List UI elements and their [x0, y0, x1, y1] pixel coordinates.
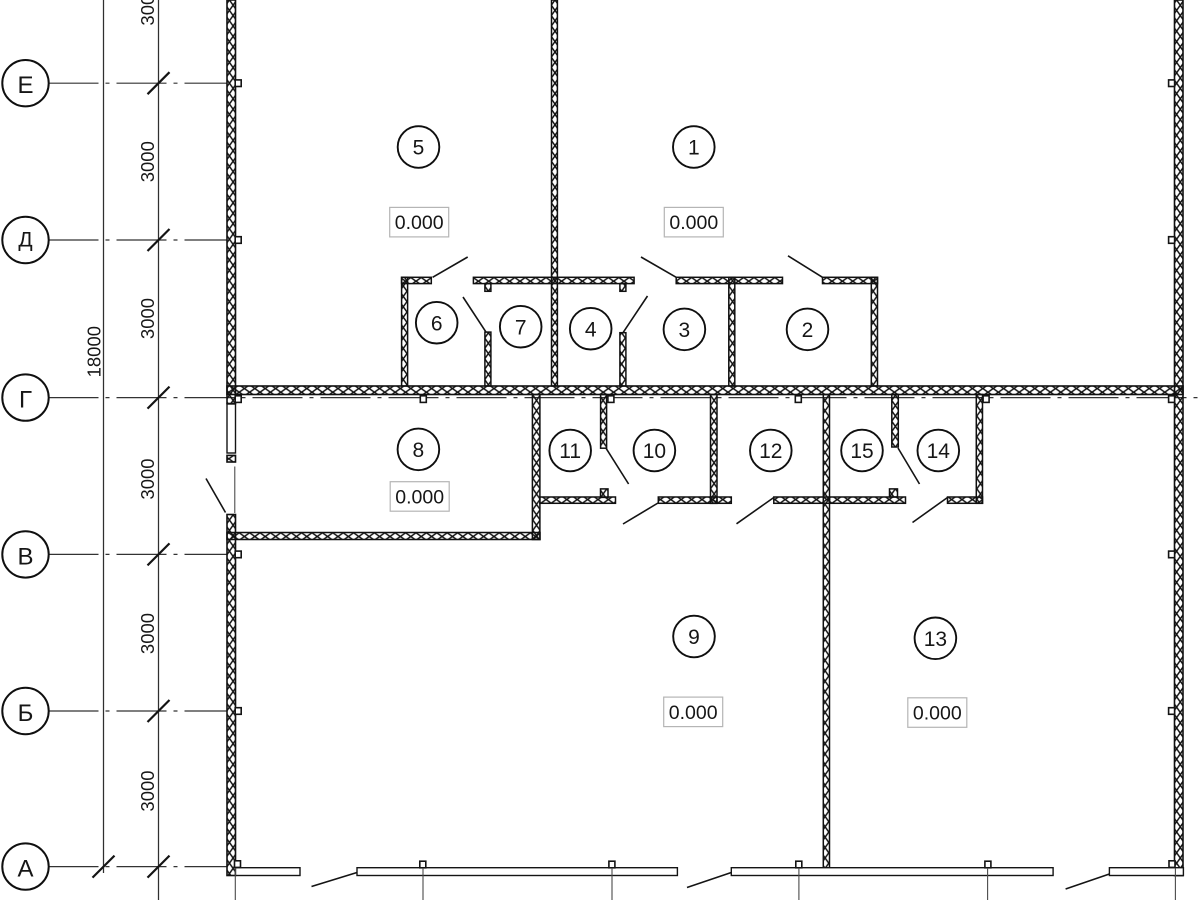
- svg-text:12: 12: [759, 440, 782, 463]
- svg-text:3: 3: [679, 319, 691, 342]
- svg-text:3000: 3000: [137, 298, 158, 339]
- svg-text:0.000: 0.000: [669, 702, 718, 724]
- svg-text:8: 8: [413, 439, 425, 462]
- svg-text:18000: 18000: [83, 326, 104, 377]
- svg-text:14: 14: [927, 440, 951, 463]
- svg-text:6: 6: [431, 312, 443, 335]
- svg-text:Е: Е: [17, 72, 33, 99]
- svg-text:3000: 3000: [137, 0, 158, 26]
- svg-text:0.000: 0.000: [395, 212, 444, 234]
- svg-text:Б: Б: [18, 700, 34, 727]
- svg-text:15: 15: [850, 440, 873, 463]
- svg-text:3000: 3000: [137, 141, 158, 182]
- svg-text:3000: 3000: [137, 458, 158, 499]
- svg-text:9: 9: [688, 626, 700, 649]
- svg-text:0.000: 0.000: [913, 703, 962, 725]
- svg-text:0.000: 0.000: [669, 212, 718, 234]
- svg-text:А: А: [17, 856, 33, 883]
- svg-text:0.000: 0.000: [395, 486, 444, 508]
- svg-text:1: 1: [688, 137, 700, 160]
- svg-text:3000: 3000: [137, 770, 158, 811]
- svg-text:2: 2: [802, 319, 814, 342]
- svg-text:5: 5: [413, 137, 425, 160]
- svg-text:Г: Г: [19, 387, 32, 414]
- svg-text:7: 7: [515, 316, 527, 339]
- svg-text:3000: 3000: [137, 613, 158, 654]
- svg-text:4: 4: [585, 318, 597, 341]
- svg-text:Д: Д: [18, 228, 32, 251]
- svg-text:13: 13: [924, 628, 947, 651]
- svg-text:10: 10: [643, 440, 666, 463]
- svg-text:11: 11: [559, 440, 581, 463]
- svg-text:В: В: [17, 543, 33, 570]
